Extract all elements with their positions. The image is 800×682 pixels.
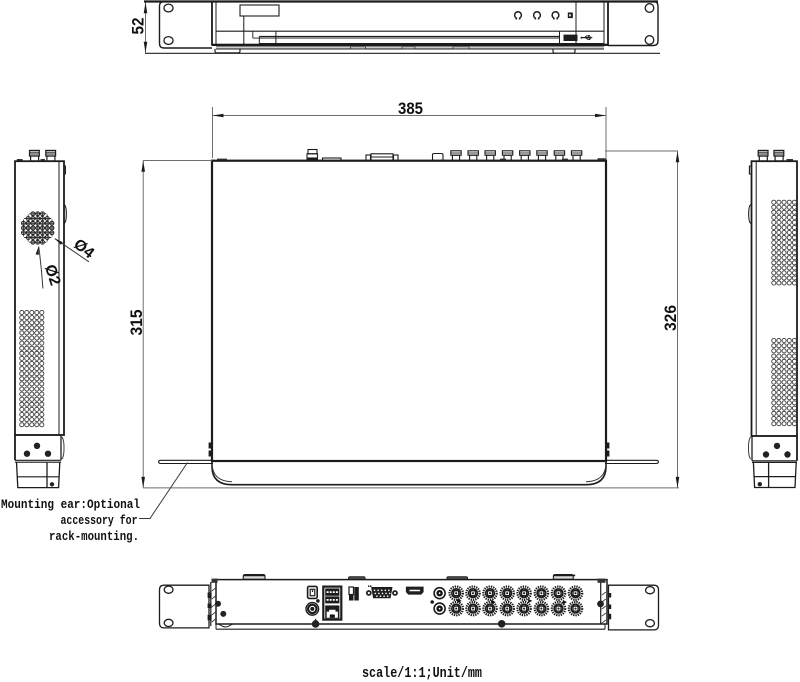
svg-text:315: 315 <box>127 310 146 336</box>
svg-text:accessory for: accessory for <box>61 513 138 528</box>
svg-text:385: 385 <box>398 99 423 118</box>
svg-text:rack-mounting.: rack-mounting. <box>49 529 139 544</box>
svg-text:Mounting ear:Optional: Mounting ear:Optional <box>1 497 140 512</box>
svg-text:326: 326 <box>661 305 680 331</box>
svg-text:52: 52 <box>129 18 148 35</box>
svg-text:scale/1:1;Unit/mm: scale/1:1;Unit/mm <box>362 665 482 682</box>
